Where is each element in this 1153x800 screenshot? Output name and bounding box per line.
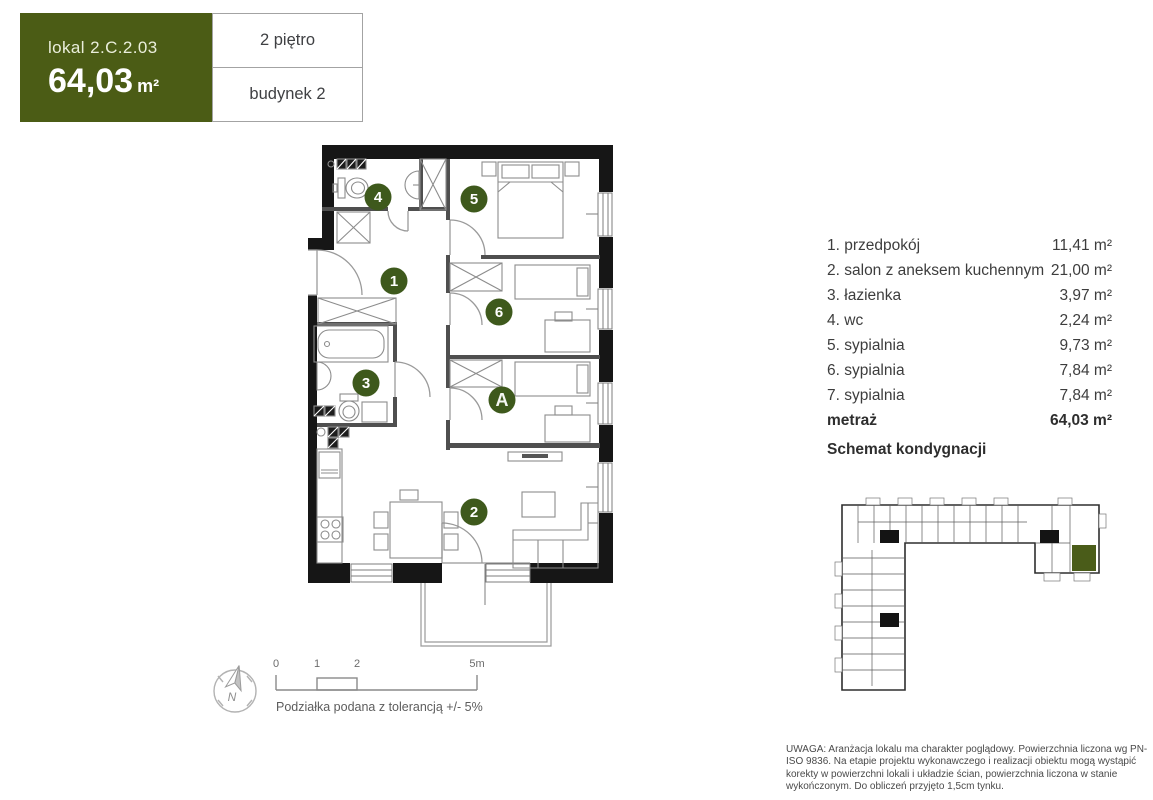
washer-icons bbox=[314, 406, 335, 416]
room-area: 21,00 m² bbox=[1051, 262, 1112, 280]
single-bed-icon-7 bbox=[515, 362, 590, 442]
room-area: 2,24 m² bbox=[1059, 312, 1112, 330]
room-badges: 1 2 3 4 5 6 A bbox=[353, 184, 516, 526]
scale-tick-1: 1 bbox=[314, 658, 320, 670]
total-label: metraż bbox=[827, 412, 877, 430]
unit-area-value: 64,03 bbox=[48, 62, 133, 100]
north-arrow-icon bbox=[226, 664, 247, 691]
apartment-floorplan: 1 2 3 4 5 6 A bbox=[300, 140, 620, 665]
scale-tick-2: 2 bbox=[354, 658, 360, 670]
hatched-appliances-wc bbox=[337, 159, 366, 169]
unit-area-unit: m² bbox=[137, 76, 159, 96]
highlighted-unit bbox=[1072, 545, 1096, 571]
legend-row: 4. wc2,24 m² bbox=[827, 312, 1112, 337]
floor-schematic bbox=[822, 490, 1152, 700]
room-area: 7,84 m² bbox=[1059, 362, 1112, 380]
sink-icon-bath bbox=[317, 362, 331, 390]
balcony bbox=[421, 583, 551, 646]
room-legend: 1. przedpokój11,41 m² 2. salon z aneksem… bbox=[827, 237, 1112, 462]
legend-row: 3. łazienka3,97 m² bbox=[827, 287, 1112, 312]
floor-label: 2 piętro bbox=[213, 14, 362, 67]
compass: N bbox=[203, 656, 267, 725]
legend-row: 6. sypialnia7,84 m² bbox=[827, 362, 1112, 387]
floor-schematic-svg bbox=[822, 490, 1152, 695]
room-badge-4: 4 bbox=[374, 189, 383, 206]
disclaimer-note: UWAGA: Aranżacja lokalu ma charakter pog… bbox=[786, 744, 1152, 794]
scale-tick-5m: 5m bbox=[469, 658, 484, 670]
room-area: 9,73 m² bbox=[1059, 337, 1112, 355]
scale-bar-line bbox=[276, 675, 477, 690]
core-blocks bbox=[880, 530, 1059, 627]
floorplan-page: lokal 2.C.2.03 64,03m² 2 piętro budynek … bbox=[0, 0, 1153, 800]
room-badge-3: 3 bbox=[362, 375, 370, 392]
room-badge-7-watermark-a: A bbox=[496, 390, 509, 410]
room-badge-5: 5 bbox=[470, 191, 478, 208]
room-area: 7,84 m² bbox=[1059, 387, 1112, 405]
single-bed-icon-6 bbox=[515, 265, 590, 352]
scale-caption: Podziałka podana z tolerancją +/- 5% bbox=[276, 700, 483, 714]
unit-meta-boxes: 2 piętro budynek 2 bbox=[212, 13, 363, 122]
scale-bar: 0 1 2 5m bbox=[262, 655, 492, 705]
total-area: 64,03 m² bbox=[1050, 412, 1112, 430]
floorplan-svg: 1 2 3 4 5 6 A bbox=[300, 140, 620, 660]
double-bed-icon bbox=[482, 162, 579, 238]
unit-label: lokal 2.C.2.03 bbox=[48, 38, 212, 58]
scale-tick-0: 0 bbox=[273, 658, 279, 670]
toilet-tank-bath bbox=[340, 394, 358, 401]
room-badge-2: 2 bbox=[470, 504, 478, 521]
dining-table-icon bbox=[374, 490, 458, 558]
coffee-table-icon bbox=[522, 492, 555, 517]
unit-header-card: lokal 2.C.2.03 64,03m² bbox=[20, 13, 212, 122]
room-area: 11,41 m² bbox=[1052, 237, 1112, 255]
legend-row: 1. przedpokój11,41 m² bbox=[827, 237, 1112, 262]
legend-row: 5. sypialnia9,73 m² bbox=[827, 337, 1112, 362]
schematic-title: Schemat kondygnacji bbox=[827, 437, 1112, 462]
legend-row: 2. salon z aneksem kuchennym21,00 m² bbox=[827, 262, 1112, 287]
legend-total-row: metraż64,03 m² bbox=[827, 412, 1112, 437]
unit-area: 64,03m² bbox=[48, 64, 212, 98]
kitchen-icons bbox=[317, 427, 349, 563]
toilet-tank-icon bbox=[338, 178, 345, 198]
bathtub-icon bbox=[314, 326, 388, 362]
tv-icon bbox=[508, 452, 562, 461]
room-badge-6: 6 bbox=[495, 304, 503, 321]
legend-row: 7. sypialnia7,84 m² bbox=[827, 387, 1112, 412]
room-badge-1: 1 bbox=[390, 273, 398, 290]
building-label: budynek 2 bbox=[213, 67, 362, 121]
room-area: 3,97 m² bbox=[1059, 287, 1112, 305]
compass-n-label: N bbox=[228, 690, 237, 704]
